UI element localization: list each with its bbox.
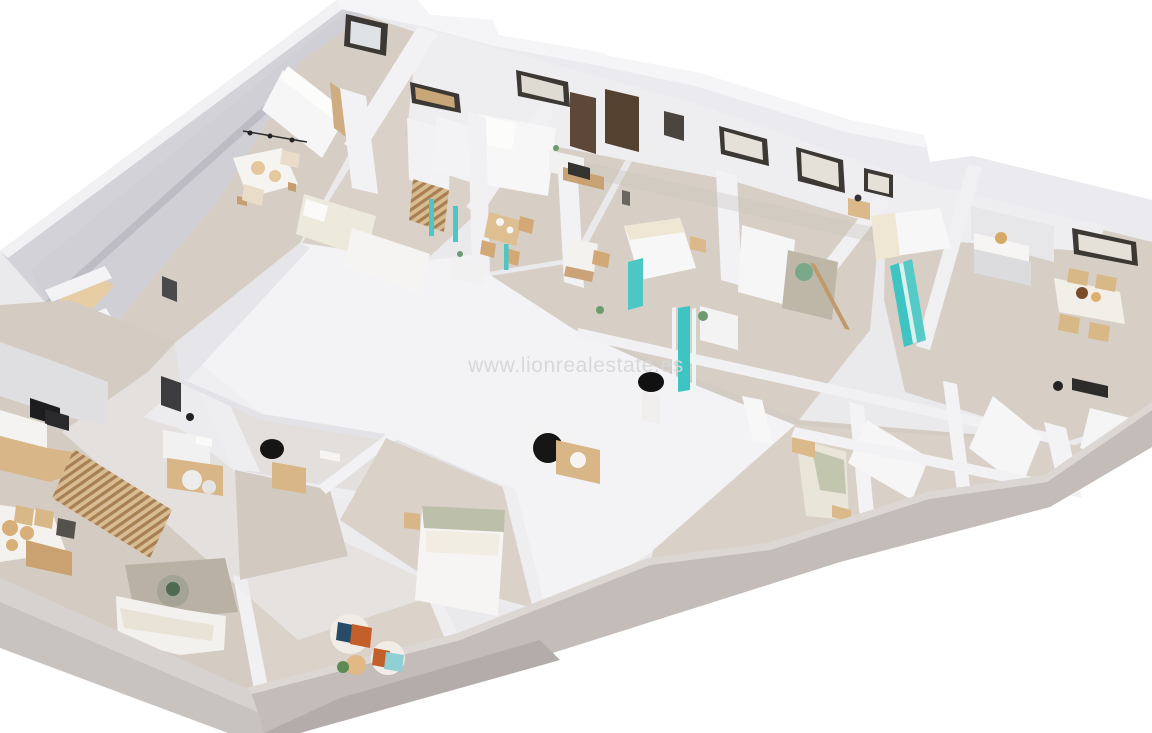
svg-text:www.lionrealestate.es: www.lionrealestate.es — [467, 354, 684, 377]
